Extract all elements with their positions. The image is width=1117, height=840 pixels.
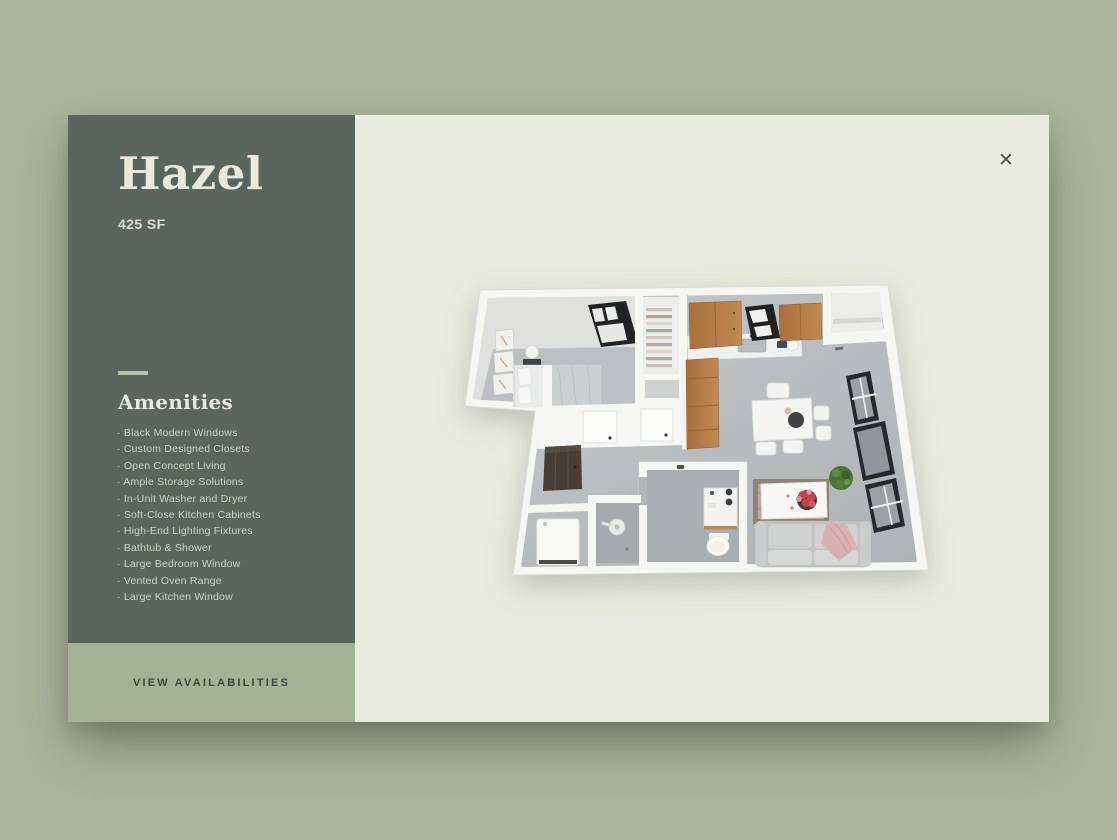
floor-plan-image <box>455 281 935 583</box>
plant-icon <box>829 466 853 490</box>
sidebar-main: Hazel 425 SF Amenities · Black Modern Wi… <box>68 115 355 643</box>
wardrobe <box>543 445 582 491</box>
amenity-item: · Black Modern Windows <box>117 425 261 441</box>
amenity-item: · Large Kitchen Window <box>117 589 261 605</box>
coffee-table <box>753 479 829 524</box>
bedroom-closet <box>635 295 687 405</box>
sidebar: Hazel 425 SF Amenities · Black Modern Wi… <box>68 115 355 722</box>
page-background: { "palette": { "page_bg": "#aab49c", "si… <box>0 0 1117 840</box>
close-button[interactable]: ✕ <box>991 145 1021 175</box>
floor-plan-svg <box>455 281 935 583</box>
amenity-item: · Open Concept Living <box>117 458 261 474</box>
amenity-item: · Bathtub & Shower <box>117 540 261 556</box>
shower <box>588 495 641 567</box>
bedroom <box>473 296 638 407</box>
view-availabilities-label: VIEW AVAILABILITIES <box>133 677 290 689</box>
hallway-doors <box>537 402 687 449</box>
amenities-list: · Black Modern Windows· Custom Designed … <box>117 425 261 605</box>
amenity-item: · High-End Lighting Fixtures <box>117 523 261 539</box>
bed <box>513 365 601 407</box>
divider <box>118 371 148 375</box>
main-panel: ✕ <box>355 115 1049 722</box>
amenities-heading: Amenities <box>118 390 233 414</box>
amenity-item: · Custom Designed Closets <box>117 441 261 457</box>
floor-plan-card: Hazel 425 SF Amenities · Black Modern Wi… <box>68 115 1049 722</box>
sofa <box>755 521 871 567</box>
close-icon: ✕ <box>998 151 1014 170</box>
plan-size-label: 425 SF <box>118 216 166 232</box>
bathroom <box>639 462 747 569</box>
vanity <box>704 488 737 530</box>
plan-name-title: Hazel <box>118 151 263 196</box>
view-availabilities-button[interactable]: VIEW AVAILABILITIES <box>68 643 355 722</box>
amenity-item: · Large Bedroom Window <box>117 556 261 572</box>
toilet <box>707 533 729 556</box>
amenity-item: · Ample Storage Solutions <box>117 474 261 490</box>
amenity-item: · In-Unit Washer and Dryer <box>117 491 261 507</box>
amenity-item: · Soft-Close Kitchen Cabinets <box>117 507 261 523</box>
amenity-item: · Vented Oven Range <box>117 573 261 589</box>
